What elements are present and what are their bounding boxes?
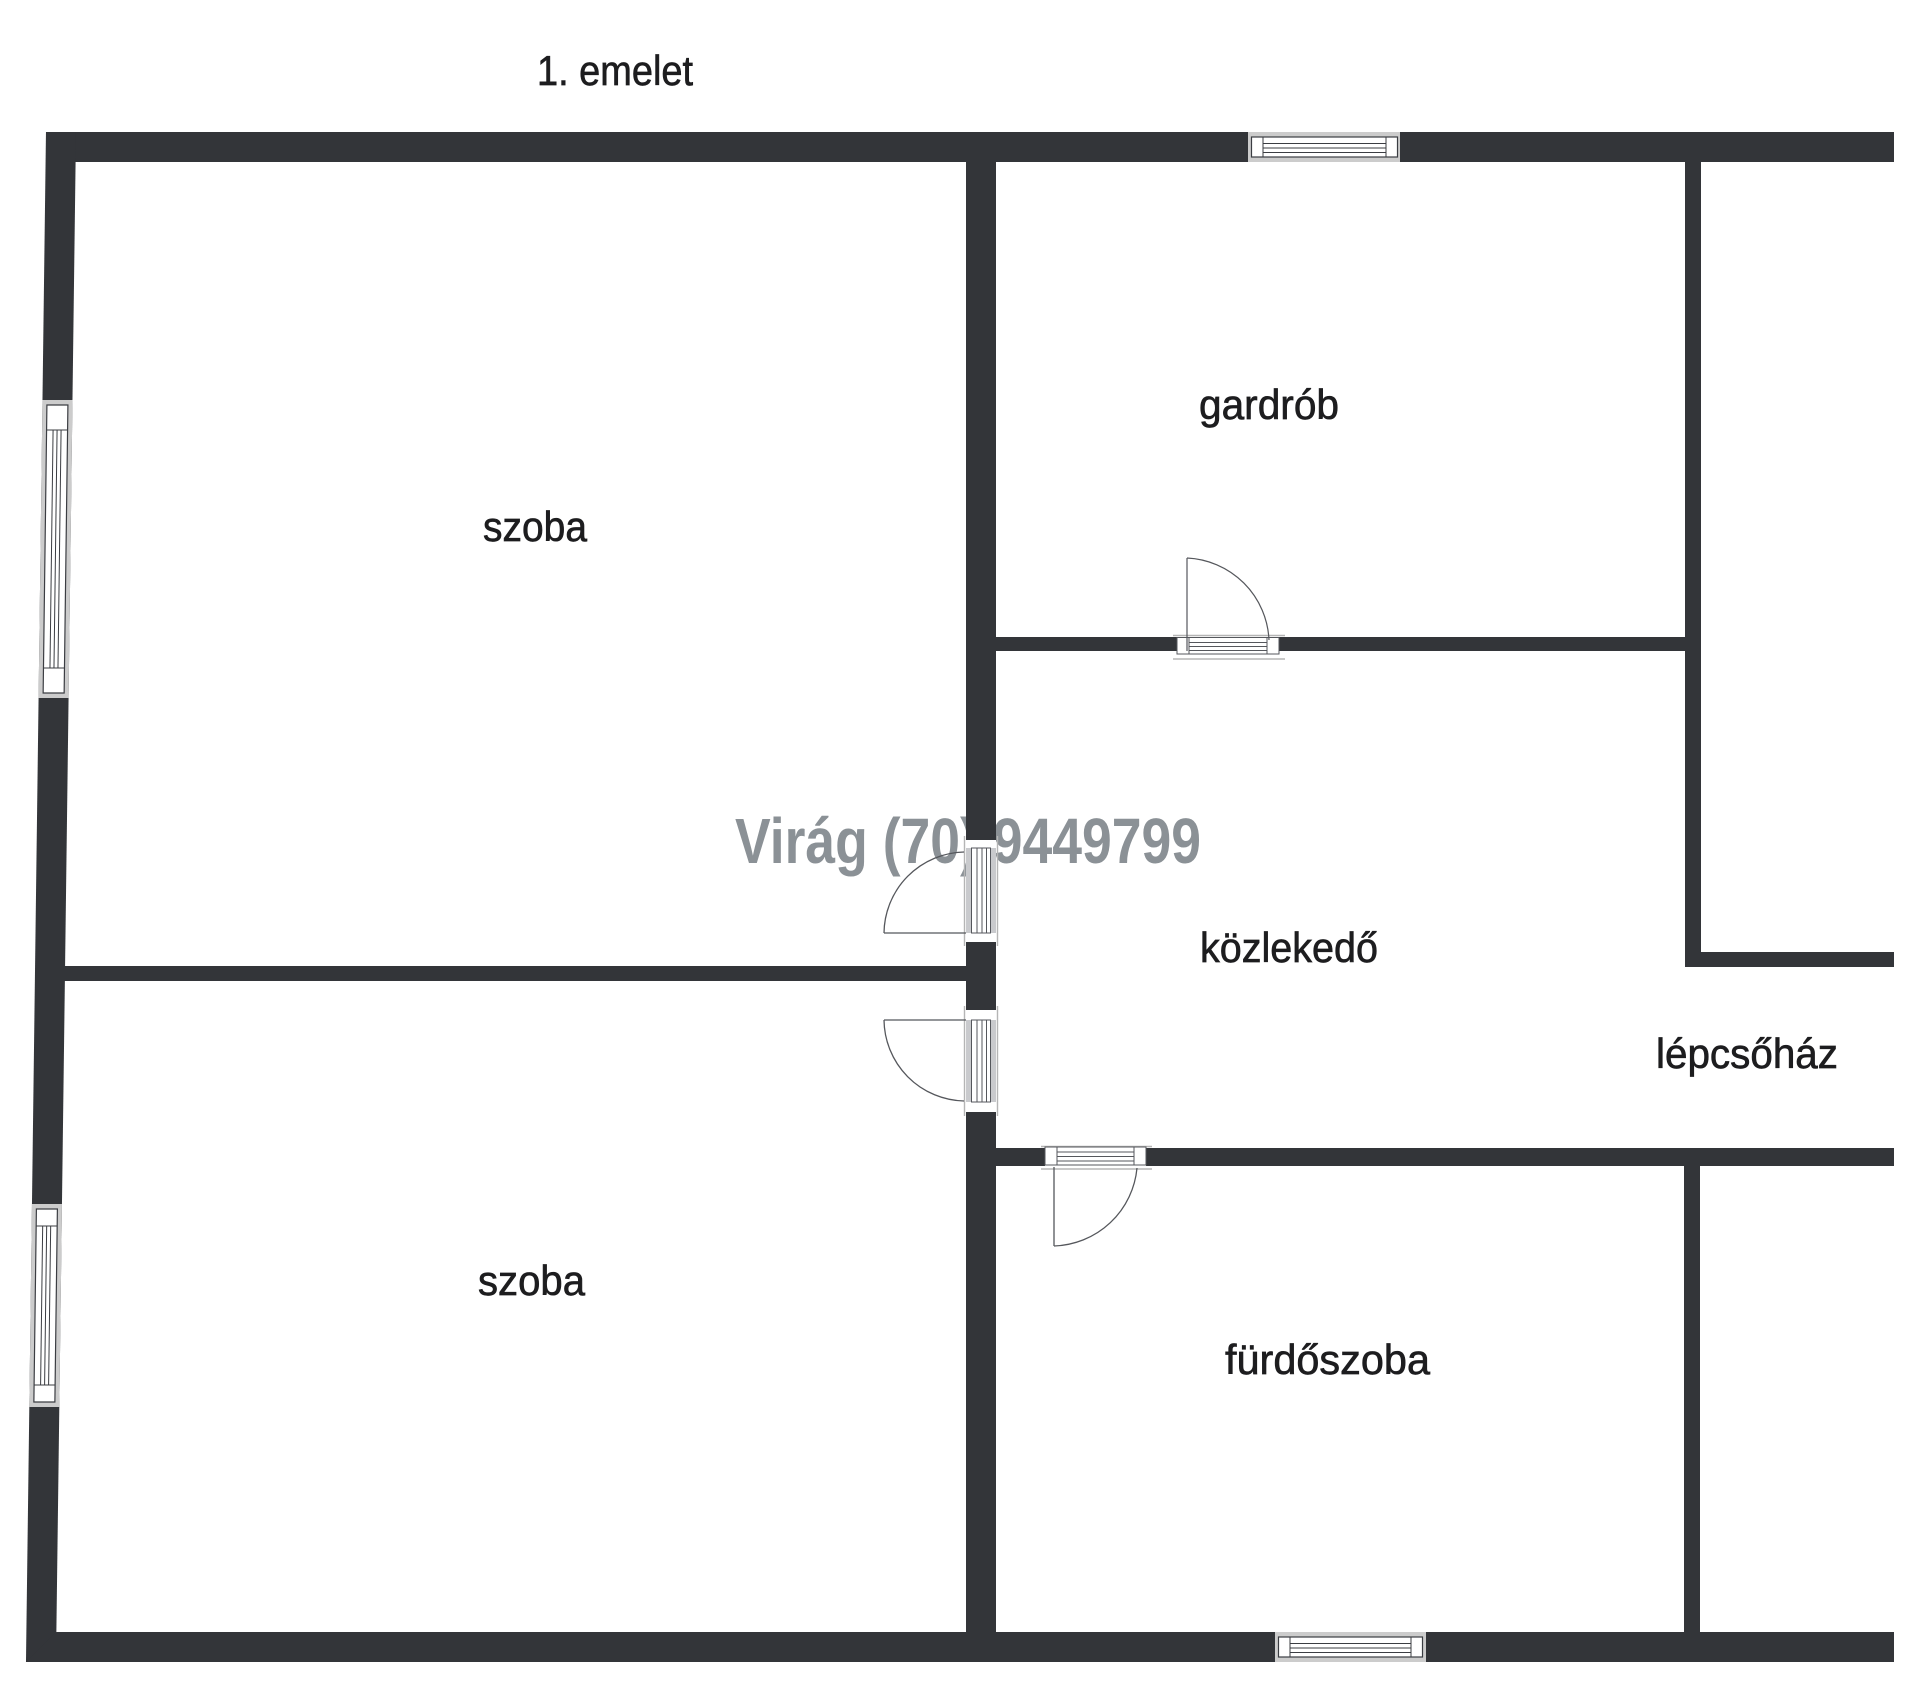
svg-text:fürdőszoba: fürdőszoba	[1225, 1336, 1431, 1383]
svg-text:közlekedő: közlekedő	[1200, 924, 1378, 971]
svg-text:1. emelet: 1. emelet	[537, 47, 693, 94]
svg-text:szoba: szoba	[483, 503, 588, 550]
svg-text:lépcsőház: lépcsőház	[1656, 1030, 1838, 1077]
svg-text:gardrób: gardrób	[1199, 381, 1339, 428]
svg-text:szoba: szoba	[478, 1257, 586, 1304]
